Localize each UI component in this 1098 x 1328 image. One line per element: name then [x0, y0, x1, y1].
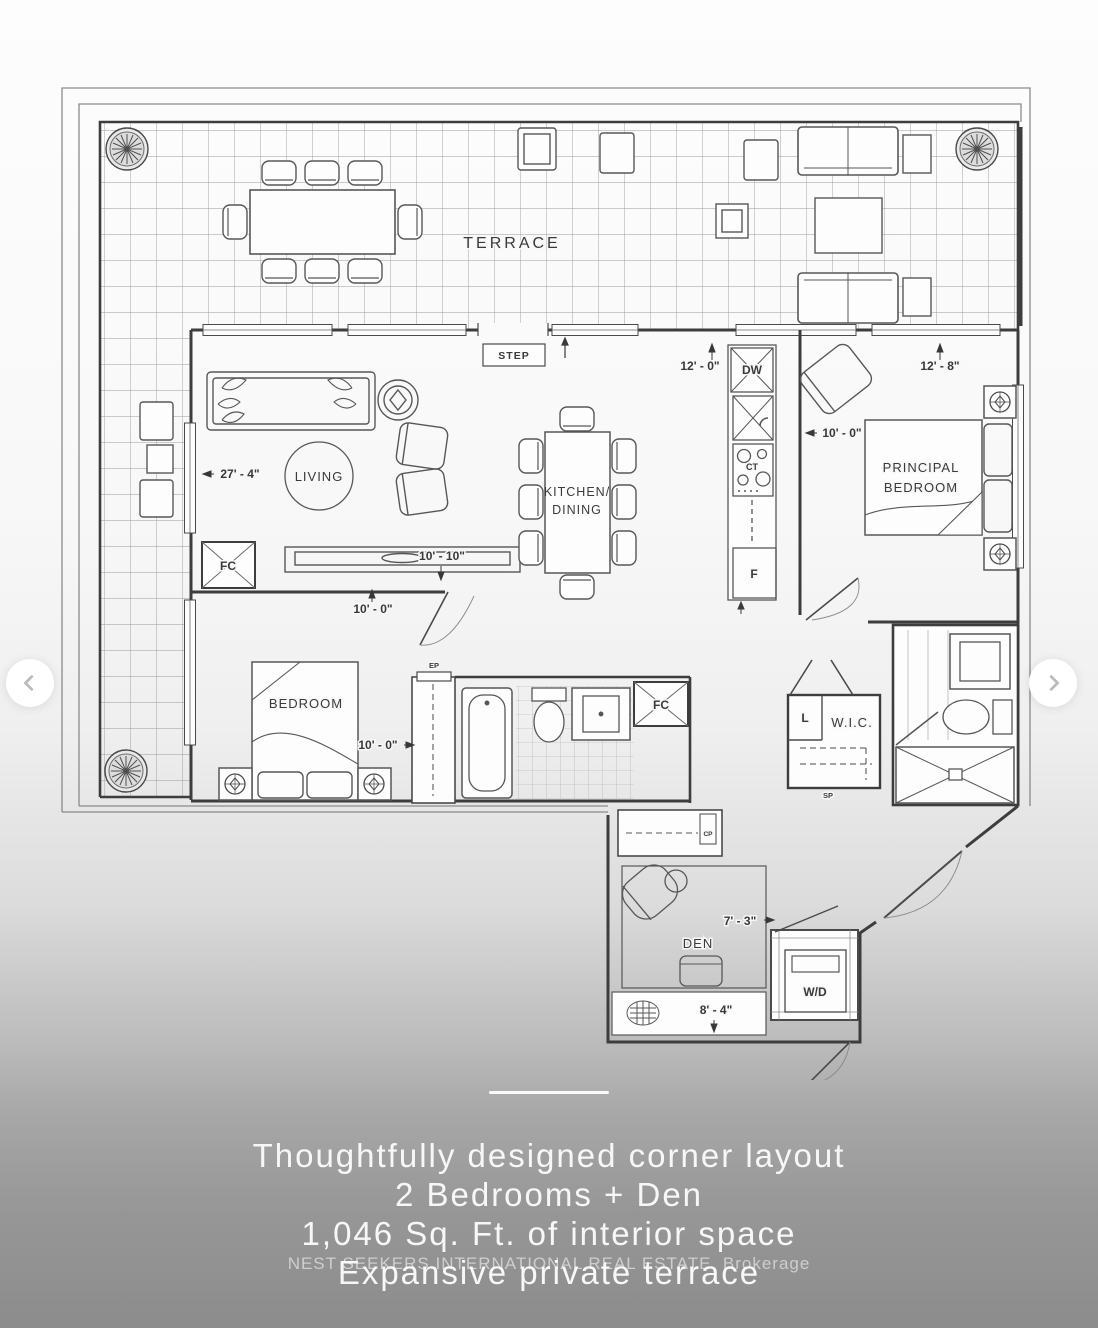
fan-coil-bath-label: FC	[653, 698, 669, 712]
dining-table: KITCHEN/ DINING	[519, 407, 636, 599]
principal-bedroom: PRINCIPAL BEDROOM	[797, 330, 1018, 622]
chevron-right-icon	[1042, 672, 1064, 694]
fridge-label: F	[750, 567, 757, 581]
den-label: DEN	[683, 936, 713, 951]
bedroom-label: BEDROOM	[269, 696, 343, 711]
dishwasher-label: DW	[742, 363, 763, 377]
pipe-chase: EP	[412, 661, 455, 803]
terrace-label: TERRACE	[463, 235, 560, 252]
dim-principal-window: 12' - 8"	[920, 359, 959, 373]
dim-kitchen-run: 10' - 10"	[419, 549, 465, 563]
cp-label: CP	[703, 831, 713, 838]
dim-principal-depth: 10' - 0"	[822, 426, 861, 440]
step-label: STEP	[498, 350, 529, 362]
ep-label: EP	[429, 661, 439, 670]
laundry-closet: W/D	[771, 906, 858, 1020]
cooktop-label: CT	[746, 462, 758, 472]
chevron-left-icon	[19, 672, 41, 694]
floorplan-svg: STEP LIVING	[0, 0, 1098, 1080]
living-label: LIVING	[295, 469, 344, 484]
fan-coil-bath: FC	[634, 682, 688, 726]
dim-living-width: 27' - 4"	[220, 467, 259, 481]
caption-line-2: 2 Bedrooms + Den	[0, 1175, 1098, 1214]
caption-divider	[489, 1091, 609, 1094]
kitchen: DW CT F	[728, 345, 776, 614]
carousel-next-button[interactable]	[1029, 659, 1077, 707]
carousel-prev-button[interactable]	[6, 659, 54, 707]
dim-living-run: 10' - 0"	[353, 602, 392, 616]
brokerage-watermark: NEST SEEKERS INTERNATIONAL REAL ESTATE, …	[0, 1254, 1098, 1274]
caption-line-1: Thoughtfully designed corner layout	[0, 1136, 1098, 1175]
dim-den-width: 8' - 4"	[700, 1003, 733, 1017]
entry-door	[884, 851, 962, 918]
principal-bedroom-label-1: PRINCIPAL	[883, 460, 960, 475]
principal-bedroom-label-2: BEDROOM	[884, 480, 958, 495]
wd-label: W/D	[803, 985, 827, 999]
wic-label: W.I.C.	[831, 715, 872, 730]
wic: L W.I.C. SP	[788, 578, 880, 800]
linen-label: L	[801, 711, 808, 725]
kitchen-dining-label-2: DINING	[552, 503, 602, 517]
fan-coil-living-label: FC	[220, 559, 236, 573]
sp-label: SP	[823, 791, 833, 800]
kitchen-dining-label-1: KITCHEN/	[544, 485, 610, 499]
caption-line-3: 1,046 Sq. Ft. of interior space	[0, 1214, 1098, 1253]
dim-kitchen-window: 12' - 0"	[680, 359, 719, 373]
dim-den-depth: 7' - 3"	[724, 914, 757, 928]
bathroom-ensuite	[893, 625, 1018, 805]
fan-coil-living: FC	[202, 542, 255, 588]
dim-bedroom-width: 10' - 0"	[358, 738, 397, 752]
listing-photo-floorplan: STEP LIVING	[0, 0, 1098, 1328]
